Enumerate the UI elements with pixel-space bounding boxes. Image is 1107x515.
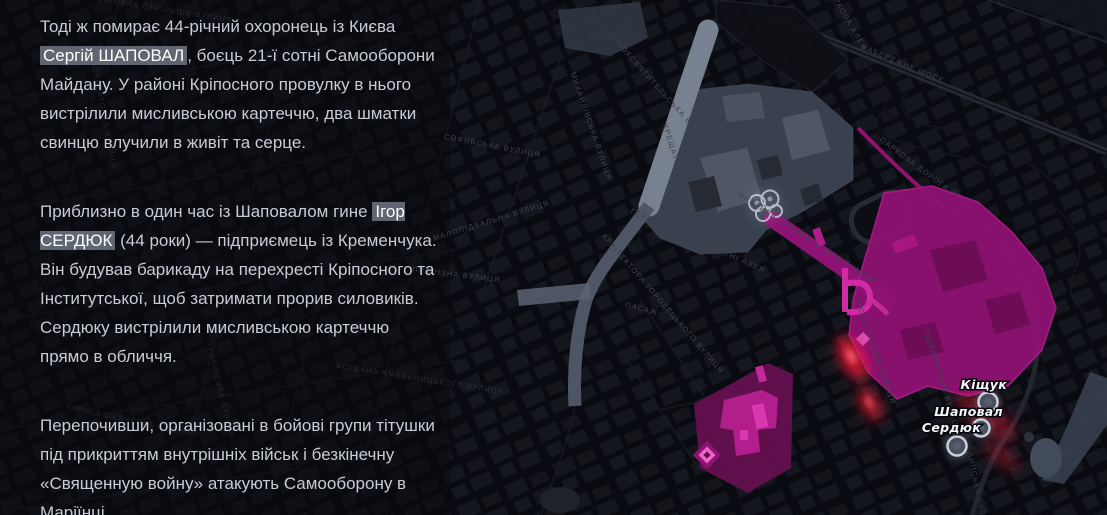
casualty-label: Кіщук [961, 377, 1008, 392]
story-map-stage: СІЧОВИХ СТРІЛЬЦІВ ВУЛИЦЯ ОБСЕРВАТОРНА ВУ… [0, 0, 1107, 515]
casualty-label: Шаповал [934, 404, 1003, 419]
story-text: Тоді ж помирає 44-річний охоронець із Ки… [40, 17, 395, 36]
story-paragraph: Тоді ж помирає 44-річний охоронець із Ки… [40, 12, 442, 157]
casualty-label: Сердюк [922, 420, 981, 435]
story-text: (44 роки) — підприємець із Кременчука. В… [40, 231, 437, 366]
story-text: Перепочивши, організовані в бойові групи… [40, 416, 435, 515]
highlighted-name: Сергій ШАПОВАЛ [40, 46, 187, 65]
story-text: Приблизно в один час із Шаповалом гине [40, 202, 372, 221]
casualty-marker[interactable] [943, 432, 971, 460]
story-paragraph: Приблизно в один час із Шаповалом гине І… [40, 197, 442, 371]
story-paragraph: Перепочивши, організовані в бойові групи… [40, 411, 442, 515]
story-column: Тоді ж помирає 44-річний охоронець із Ки… [40, 12, 442, 515]
